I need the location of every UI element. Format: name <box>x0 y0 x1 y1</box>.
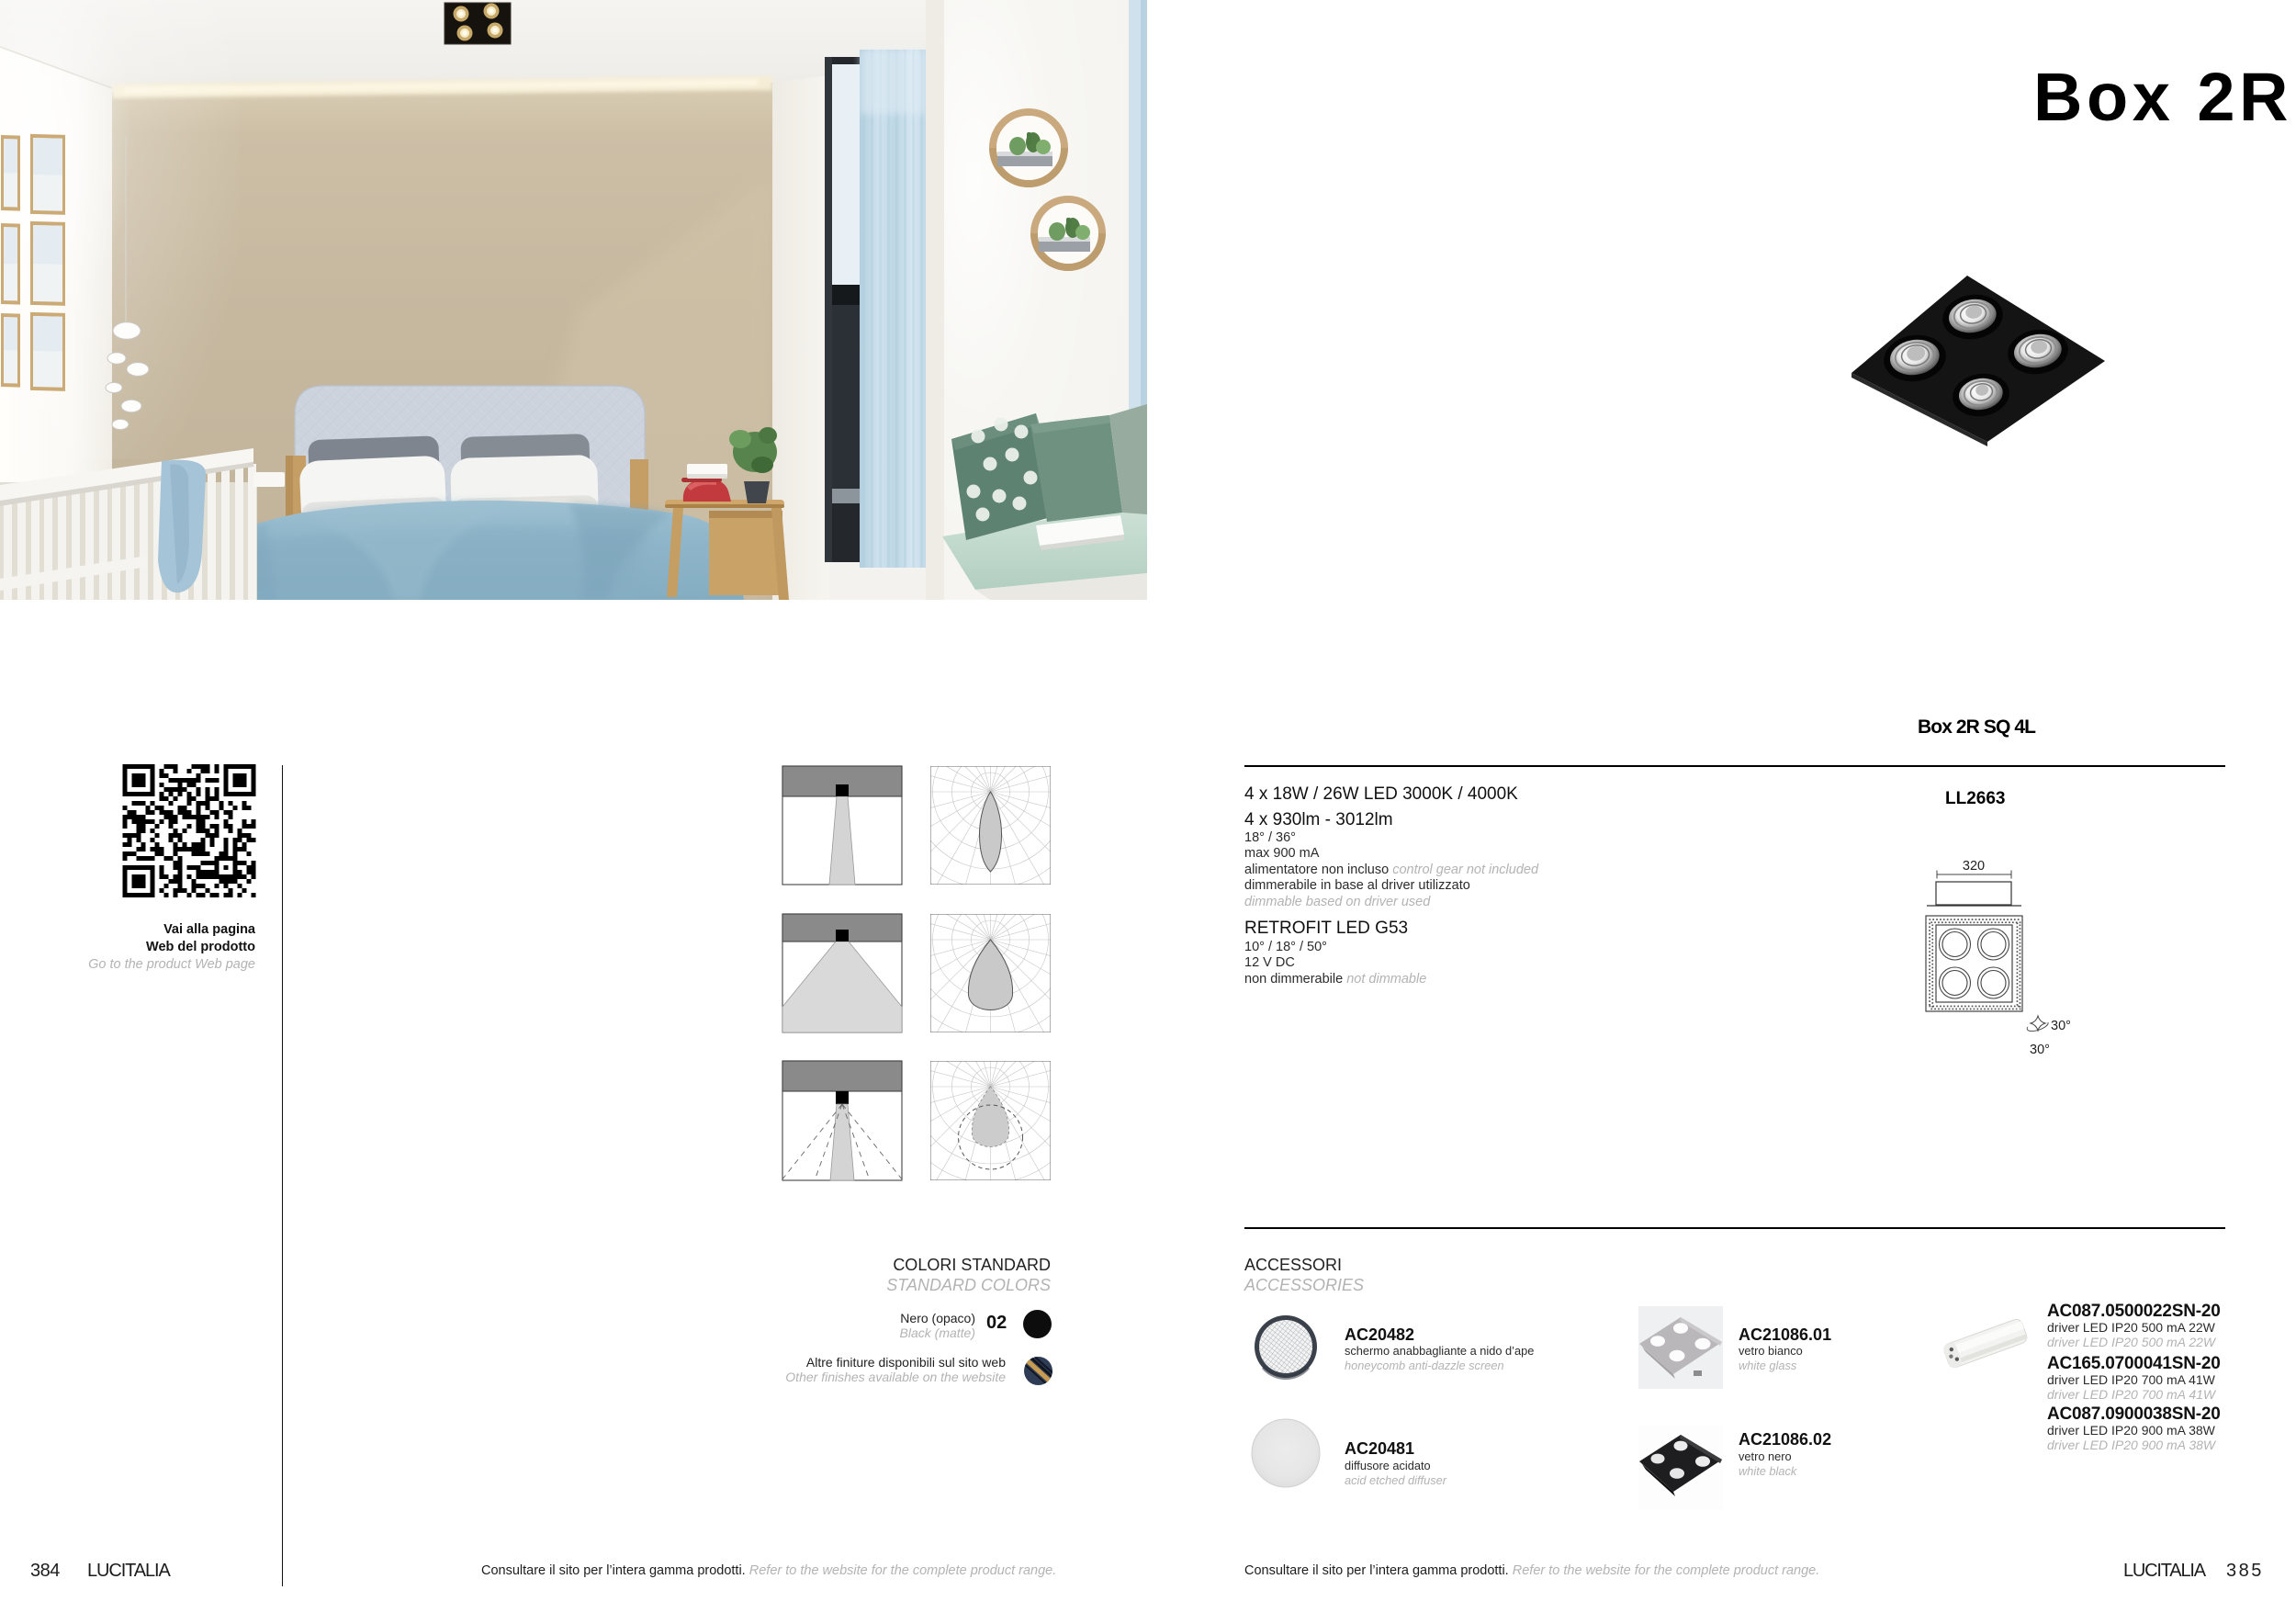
svg-text:30°: 30° <box>2051 1019 2071 1033</box>
svg-text:30°: 30° <box>2030 1043 2050 1057</box>
svg-text:320: 320 <box>1963 859 1985 874</box>
